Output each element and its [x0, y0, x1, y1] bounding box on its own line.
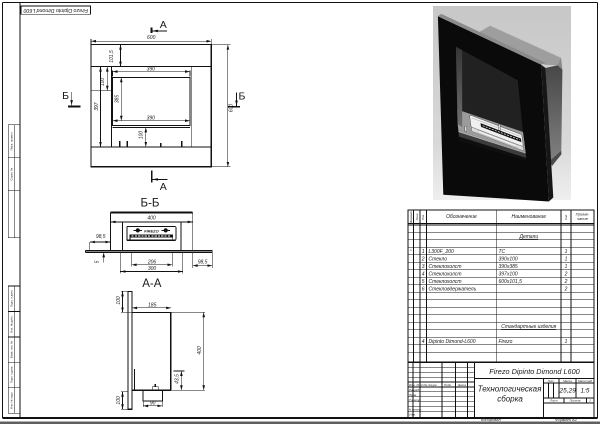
svg-text:Обозначение: Обозначение [446, 214, 477, 220]
svg-text:Технологическая: Технологическая [478, 385, 542, 394]
svg-text:1: 1 [422, 249, 425, 255]
svg-text:Подп. и дата: Подп. и дата [10, 366, 14, 383]
svg-text:Инв. № дубл.: Инв. № дубл. [10, 315, 14, 333]
svg-text:Лист: Лист [549, 399, 558, 403]
svg-text:Масса: Масса [563, 379, 572, 383]
svg-text:1: 1 [565, 264, 568, 270]
svg-text:300: 300 [148, 266, 157, 272]
svg-text:385: 385 [115, 95, 121, 104]
svg-text:90: 90 [150, 400, 156, 406]
svg-text:100: 100 [116, 396, 122, 405]
svg-text:Подп. и дата: Подп. и дата [10, 290, 14, 307]
svg-text:100: 100 [138, 131, 144, 140]
svg-text:Формат А2: Формат А2 [555, 417, 578, 422]
svg-text:Стеклохолст: Стеклохолст [429, 264, 462, 270]
svg-text:Подп.: Подп. [444, 383, 452, 387]
svg-text:№ докум.: № докум. [424, 383, 437, 387]
svg-text:А-А: А-А [142, 278, 162, 290]
svg-text:L300F_200: L300F_200 [429, 249, 455, 255]
svg-text:Н.контр.: Н.контр. [409, 408, 422, 412]
svg-text:А: А [160, 19, 167, 31]
svg-text:Firezo: Firezo [499, 339, 513, 345]
svg-text:Справ. №: Справ. № [10, 168, 14, 181]
svg-text:Firezo Dipinto Dimond L600: Firezo Dipinto Dimond L600 [24, 7, 88, 13]
svg-text:Dipinto Dimond-L600: Dipinto Dimond-L600 [429, 339, 476, 345]
svg-text:600: 600 [147, 35, 156, 41]
svg-text:2: 2 [421, 257, 425, 263]
svg-text:Стекло: Стекло [429, 257, 448, 263]
svg-text:Firezo Dipinto Dimond L600: Firezo Dipinto Dimond L600 [489, 367, 579, 376]
svg-text:Кол.: Кол. [564, 214, 568, 220]
svg-text:100: 100 [100, 78, 106, 87]
svg-text:98,5: 98,5 [96, 234, 106, 240]
svg-text:Стеклохолст: Стеклохолст [429, 279, 462, 285]
svg-text:3: 3 [422, 264, 425, 270]
svg-text:5: 5 [422, 279, 425, 285]
svg-text:600: 600 [228, 104, 234, 113]
svg-text:1: 1 [565, 249, 568, 255]
svg-text:Б-Б: Б-Б [141, 198, 160, 210]
svg-text:390: 390 [147, 66, 156, 72]
svg-text:Стекловдержатель: Стекловдержатель [429, 287, 477, 293]
svg-text:Наименование: Наименование [512, 214, 547, 220]
svg-text:397: 397 [94, 102, 100, 111]
svg-text:43,5: 43,5 [174, 374, 180, 384]
svg-text:100: 100 [116, 296, 122, 305]
svg-text:5: 5 [95, 260, 101, 263]
svg-text:390х385: 390х385 [499, 264, 518, 270]
svg-text:1: 1 [565, 339, 568, 345]
svg-text:Б: Б [62, 90, 69, 102]
svg-text:206: 206 [147, 259, 157, 265]
svg-text:Перв. примен.: Перв. примен. [10, 132, 14, 151]
svg-text:Дата: Дата [457, 383, 466, 387]
svg-text:Копировал: Копировал [481, 417, 502, 422]
svg-text:сборка: сборка [497, 395, 523, 404]
svg-text:Стандартные изделия: Стандартные изделия [501, 324, 556, 330]
svg-text:ТС: ТС [499, 249, 506, 255]
svg-text:Изм. Лист: Изм. Лист [409, 383, 424, 387]
svg-text:2: 2 [564, 279, 568, 285]
svg-text:Разраб.: Разраб. [409, 388, 420, 392]
svg-text:397х100: 397х100 [499, 272, 518, 278]
svg-text:390х100: 390х100 [499, 257, 518, 263]
svg-text:Масштаб: Масштаб [578, 379, 592, 383]
svg-text:Пров.: Пров. [409, 393, 417, 397]
svg-text:Поз.: Поз. [421, 214, 425, 220]
svg-text:Стеклохолст: Стеклохолст [429, 272, 462, 278]
svg-text:Б: Б [238, 90, 245, 102]
svg-text:4: 4 [422, 272, 425, 278]
svg-text:Листов: Листов [569, 399, 581, 403]
svg-text:Зона: Зона [415, 213, 419, 220]
svg-text:98,5: 98,5 [198, 260, 208, 266]
svg-text:Взам. инв. №: Взам. инв. № [10, 341, 14, 358]
svg-text:Лит.: Лит. [547, 379, 555, 383]
svg-text:25,29: 25,29 [559, 388, 577, 395]
svg-text:Утв.: Утв. [409, 413, 416, 417]
svg-text:Инв. № подл.: Инв. № подл. [10, 391, 14, 409]
svg-text:400: 400 [147, 216, 156, 222]
svg-text:2: 2 [564, 272, 568, 278]
svg-text:6: 6 [422, 287, 425, 293]
svg-text:2: 2 [564, 287, 568, 293]
svg-text:А: А [160, 181, 167, 193]
svg-text:600х101,5: 600х101,5 [499, 279, 523, 285]
svg-text:4: 4 [422, 339, 425, 345]
svg-text:Т.контр.: Т.контр. [409, 398, 421, 402]
svg-text:185: 185 [148, 302, 157, 308]
svg-text:1: 1 [565, 257, 568, 263]
svg-text:FIREZO: FIREZO [144, 228, 160, 233]
svg-text:чание: чание [577, 216, 589, 221]
svg-text:400: 400 [197, 346, 203, 355]
svg-text:101,5: 101,5 [109, 50, 115, 63]
svg-text:Формат: Формат [409, 211, 413, 223]
svg-text:390: 390 [147, 115, 156, 121]
svg-text:1:5: 1:5 [580, 388, 589, 395]
svg-text:Детали: Детали [518, 234, 538, 240]
